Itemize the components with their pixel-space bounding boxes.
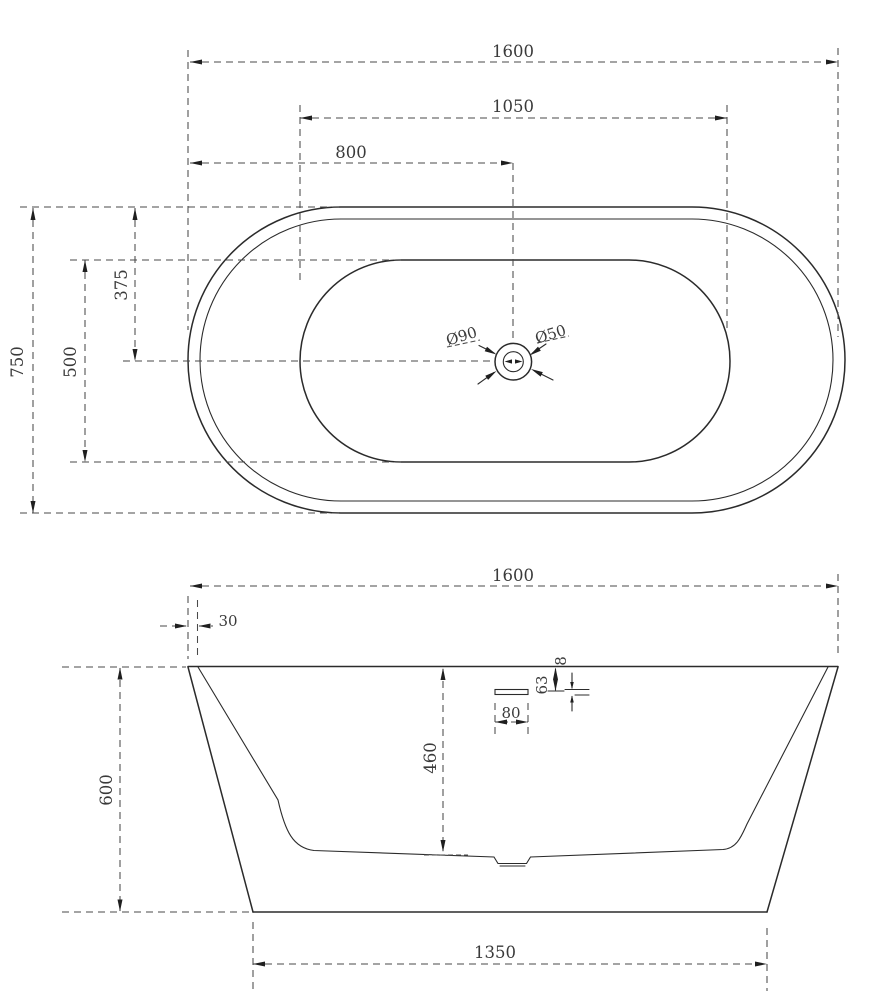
dim-side-overflow-width: 80	[501, 704, 520, 722]
top-view-labels: 1600 1050 800 750 500 375 Ø90 Ø50	[8, 42, 568, 378]
dim-top-centerline-offset: 375	[112, 269, 131, 301]
dim-side-base-length: 1350	[474, 943, 516, 962]
side-view-extension-lines	[62, 574, 838, 991]
dim-drain-inner-diameter: Ø50	[533, 321, 568, 347]
dim-side-overflow-thickness: 8	[552, 656, 570, 666]
dim-top-overall-length: 1600	[492, 42, 534, 61]
top-view-dimension-lines	[31, 60, 839, 514]
side-view-labels: 1600 30 600 460 63 8 80 1350	[97, 566, 570, 962]
dim-top-basin-length: 1050	[492, 97, 534, 116]
drain-outer-circle	[495, 343, 532, 380]
side-view-dimension-lines	[118, 584, 839, 967]
tub-right-outer-wall	[767, 667, 838, 912]
tub-inner-profile	[198, 667, 828, 864]
dim-side-overall-height: 600	[97, 774, 116, 806]
drawing-canvas: 1600 1050 800 750 500 375 Ø90 Ø50	[0, 0, 892, 1000]
bathtub-technical-drawing: 1600 1050 800 750 500 375 Ø90 Ø50	[0, 0, 892, 1000]
dim-top-drain-offset: 800	[335, 143, 367, 162]
dim-side-rim-thickness: 30	[218, 612, 237, 630]
side-view: 1600 30 600 460 63 8 80 1350	[62, 566, 838, 991]
top-view: 1600 1050 800 750 500 375 Ø90 Ø50	[8, 42, 845, 513]
dim-side-inner-depth: 460	[421, 742, 440, 774]
dim-top-basin-width: 500	[61, 346, 80, 378]
dim-side-overall-length: 1600	[492, 566, 534, 585]
dim-top-overall-width: 750	[8, 346, 27, 378]
overflow-slot	[495, 690, 528, 695]
dim-side-overflow-drop: 63	[533, 675, 551, 694]
dim-drain-outer-diameter: Ø90	[444, 323, 479, 349]
